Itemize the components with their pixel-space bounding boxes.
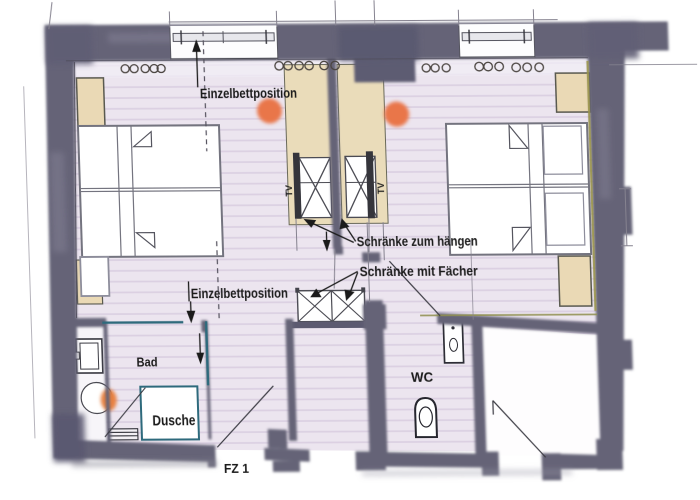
svg-text:Schränke mit Fächer: Schränke mit Fächer: [359, 264, 478, 280]
svg-text:Schränke zum hängen: Schränke zum hängen: [356, 234, 477, 250]
svg-text:Einzelbettposition: Einzelbettposition: [191, 285, 289, 302]
svg-text:TV: TV: [284, 185, 294, 197]
svg-text:Einzelbettposition: Einzelbettposition: [200, 85, 298, 102]
svg-text:TV: TV: [376, 182, 386, 194]
svg-text:Dusche: Dusche: [152, 413, 196, 429]
svg-text:Bad: Bad: [136, 356, 157, 370]
svg-text:FZ 1: FZ 1: [224, 461, 249, 476]
svg-text:WC: WC: [411, 369, 434, 385]
